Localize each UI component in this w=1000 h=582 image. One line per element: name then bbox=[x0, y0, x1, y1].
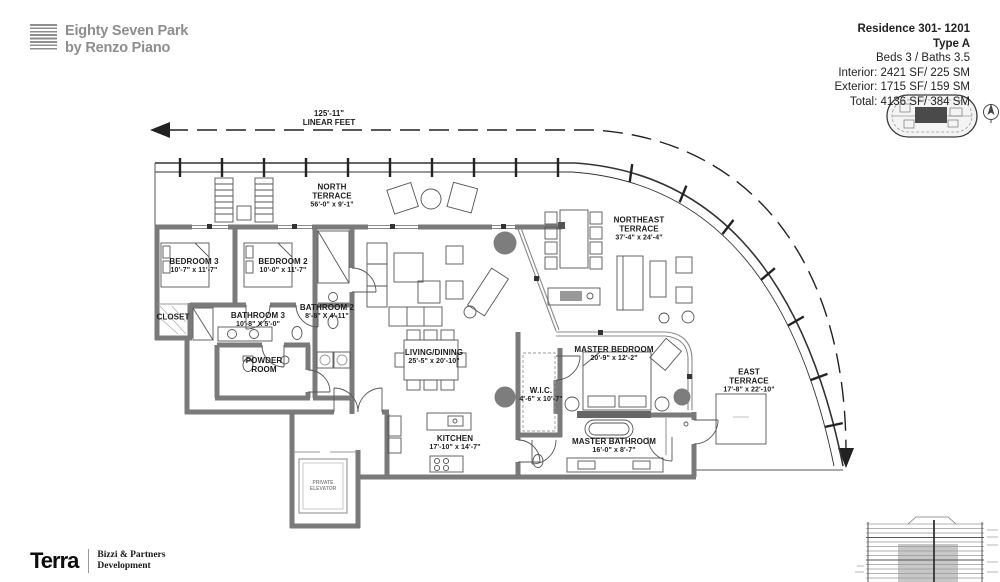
room-label-bedroom-3: BEDROOM 3 10'-7" x 11'-7" bbox=[169, 257, 218, 275]
unit-walls bbox=[155, 225, 696, 528]
brand-name: Eighty Seven Park by Renzo Piano bbox=[65, 23, 188, 57]
room-label-master-bathroom: MASTER BATHROOM 16'-0" x 8'-7" bbox=[572, 437, 656, 455]
room-label-bathroom-2: BATHROOM 2 8'-8" X 4'-11" bbox=[300, 303, 354, 321]
floorplan-sheet: Eighty Seven Park by Renzo Piano Residen… bbox=[0, 0, 1000, 582]
linear-feet-dimension-line bbox=[150, 122, 854, 468]
room-label-powder-room: POWDER ROOM bbox=[246, 356, 283, 374]
residence-interior-area: Interior: 2421 SF/ 225 SM bbox=[834, 66, 970, 81]
building-section-thumbnail bbox=[855, 517, 998, 582]
developer-logos: Terra Bizzi & Partners Development bbox=[30, 548, 165, 574]
brand-line1: Eighty Seven Park bbox=[65, 23, 188, 40]
residence-title: Residence 301- 1201 bbox=[834, 22, 970, 37]
terra-logo: Terra bbox=[30, 548, 78, 574]
room-label-northeast-terrace: NORTHEAST TERRACE 37'-4" x 24'-4" bbox=[614, 216, 665, 243]
residence-total-area: Total: 4136 SF/ 384 SM bbox=[834, 95, 970, 110]
room-label-closet: CLOSET bbox=[156, 313, 189, 322]
north-arrow-compass-icon bbox=[984, 104, 999, 124]
room-label-master-bedroom: MASTER BEDROOM 20'-9" x 12'-2" bbox=[574, 345, 653, 363]
brand-line2: by Renzo Piano bbox=[65, 40, 188, 57]
brand-logo-icon bbox=[30, 24, 57, 50]
room-label-kitchen: KITCHEN 17'-10" x 14'-7" bbox=[429, 434, 480, 452]
room-label-private-elevator: PRIVATE ELEVATOR bbox=[310, 480, 336, 492]
residence-exterior-area: Exterior: 1715 SF/ 159 SM bbox=[834, 80, 970, 95]
residence-beds-baths: Beds 3 / Baths 3.5 bbox=[834, 51, 970, 66]
linear-feet-label: 125'-11" LINEAR FEET bbox=[303, 109, 355, 127]
room-label-north-terrace: NORTH TERRACE 56'-0" x 9'-1" bbox=[310, 183, 353, 210]
arrow-left-icon bbox=[150, 122, 170, 138]
residence-info: Residence 301- 1201 Type A Beds 3 / Bath… bbox=[834, 22, 970, 109]
room-label-bathroom-3: BATHROOM 3 10'-8" X 5'-0" bbox=[231, 311, 285, 329]
room-label-bedroom-2: BEDROOM 2 10'-0" x 11'-7" bbox=[258, 257, 307, 275]
room-label-wic: W.I.C. 4'-6" x 10'-7" bbox=[519, 386, 562, 404]
room-label-east-terrace: EAST TERRACE 17'-8" x 22'-10" bbox=[723, 368, 774, 395]
bizzi-partners-logo: Bizzi & Partners Development bbox=[97, 550, 165, 572]
room-label-living-dining: LIVING/DINING 25'-5" x 20'-10" bbox=[405, 348, 463, 366]
residence-type: Type A bbox=[834, 37, 970, 52]
keyplan-unit-highlight bbox=[915, 107, 947, 123]
footer-divider bbox=[88, 549, 89, 573]
